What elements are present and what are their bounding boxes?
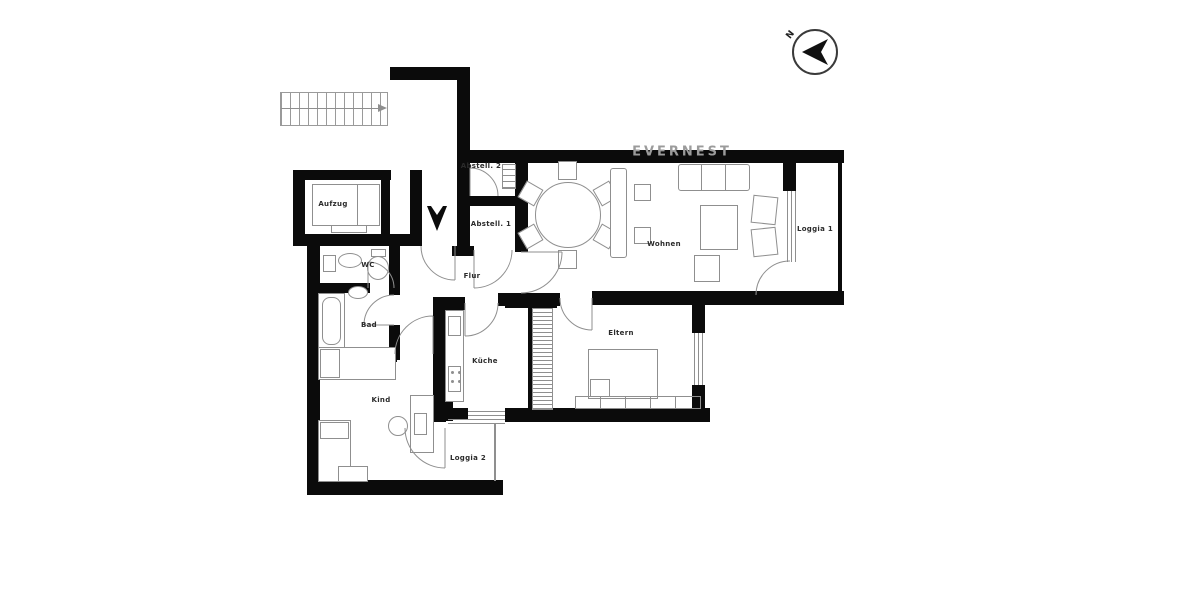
room-label-abstell1: Abstell. 1 bbox=[471, 220, 511, 228]
room-label-wc: WC bbox=[361, 261, 374, 269]
eltern-door-arc bbox=[560, 298, 592, 330]
room-label-eltern: Eltern bbox=[608, 329, 634, 337]
room-label-aufzug: Aufzug bbox=[318, 200, 347, 208]
room-label-abstell2: Abstell. 2 bbox=[461, 162, 501, 170]
room-label-loggia2: Loggia 2 bbox=[450, 454, 486, 462]
room-label-loggia1: Loggia 1 bbox=[797, 225, 833, 233]
kind-door-arc bbox=[395, 316, 433, 354]
abstell2-door-arc bbox=[470, 168, 498, 196]
kueche-door-arc bbox=[465, 303, 498, 336]
room-label-kueche: Küche bbox=[472, 357, 498, 365]
door-arcs-overlay bbox=[0, 0, 1200, 600]
floor-plan: N EVERNEST Aufzug Abstell. 2 Abstell. 1 … bbox=[0, 0, 1200, 600]
room-label-kind: Kind bbox=[371, 396, 390, 404]
room-label-wohnen: Wohnen bbox=[647, 240, 681, 248]
abstell1-door-arc bbox=[474, 250, 512, 288]
loggia1-door-arc bbox=[756, 261, 790, 295]
brand-watermark: EVERNEST bbox=[632, 145, 732, 160]
room-label-flur: Flur bbox=[464, 272, 481, 280]
entry-door-arc bbox=[421, 246, 455, 280]
wohnen-door-arc bbox=[521, 252, 562, 293]
stairs-direction-arrow bbox=[378, 104, 387, 112]
loggia2-door-arc bbox=[405, 428, 445, 468]
room-label-bad: Bad bbox=[361, 321, 377, 329]
